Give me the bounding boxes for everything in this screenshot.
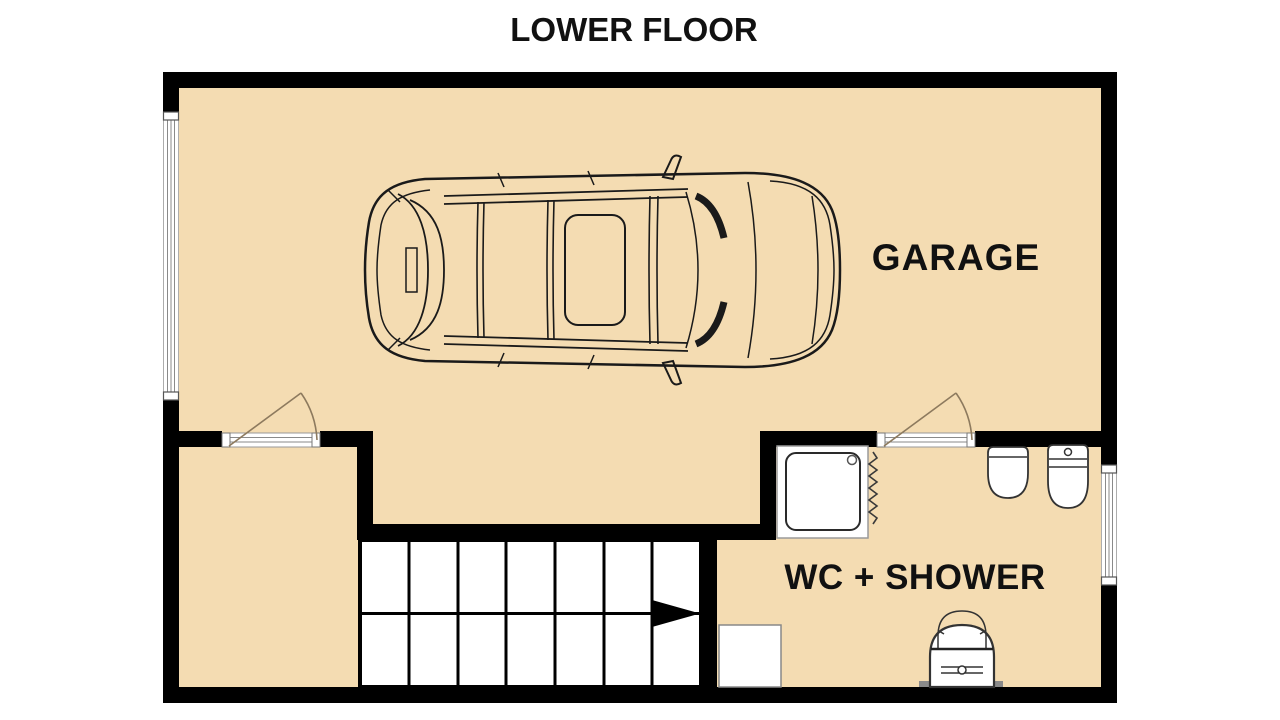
washbasin-drain <box>958 666 966 674</box>
shower <box>777 446 877 538</box>
wall-garage-wc-left <box>760 431 877 447</box>
wall-left-upper <box>163 72 179 112</box>
page-title: LOWER FLOOR <box>510 11 758 48</box>
door-jamb <box>877 433 885 447</box>
stair-step <box>360 540 409 614</box>
right-wall-window <box>1102 465 1117 585</box>
stair-step <box>604 540 652 614</box>
wc-shower-label: WC + SHOWER <box>784 558 1045 597</box>
wall-stairs-left <box>357 431 373 540</box>
stair-step <box>409 614 458 688</box>
stair-step <box>506 540 555 614</box>
left-wall-window <box>164 112 179 400</box>
garage-label: GARAGE <box>872 237 1040 278</box>
wc-bowl <box>988 447 1028 498</box>
wall-storage-left <box>179 431 222 447</box>
washbasin-body <box>930 625 994 687</box>
stair-step <box>360 614 409 688</box>
stair-step <box>555 540 604 614</box>
window-cap <box>1102 465 1117 473</box>
wall-shower-left <box>760 431 776 540</box>
shower-drain <box>848 456 857 465</box>
stair-step <box>604 614 652 688</box>
floor-plan-page: LOWER FLOOR <box>0 0 1280 720</box>
stair-step <box>409 540 458 614</box>
wall-top <box>163 72 1117 88</box>
window-cap <box>164 392 179 400</box>
shower-tray <box>786 453 860 530</box>
wall-right-upper <box>1101 72 1117 465</box>
staircase <box>360 540 701 687</box>
door-jamb <box>222 433 230 447</box>
washing-machine <box>719 625 781 687</box>
stair-step <box>555 614 604 688</box>
flush-button <box>1065 449 1072 456</box>
wall-hung-wc <box>988 447 1028 498</box>
floor-plan-canvas: LOWER FLOOR <box>0 0 1280 720</box>
stair-step <box>458 540 506 614</box>
toilet-with-cistern <box>1048 445 1088 508</box>
wall-stairs-right <box>701 524 717 703</box>
wall-bottom <box>163 687 1117 703</box>
wall-left-lower <box>163 400 179 703</box>
window-cap <box>1102 577 1117 585</box>
wall-right-lower <box>1101 585 1117 703</box>
stair-step <box>506 614 555 688</box>
window-cap <box>164 112 179 120</box>
stair-step <box>458 614 506 688</box>
